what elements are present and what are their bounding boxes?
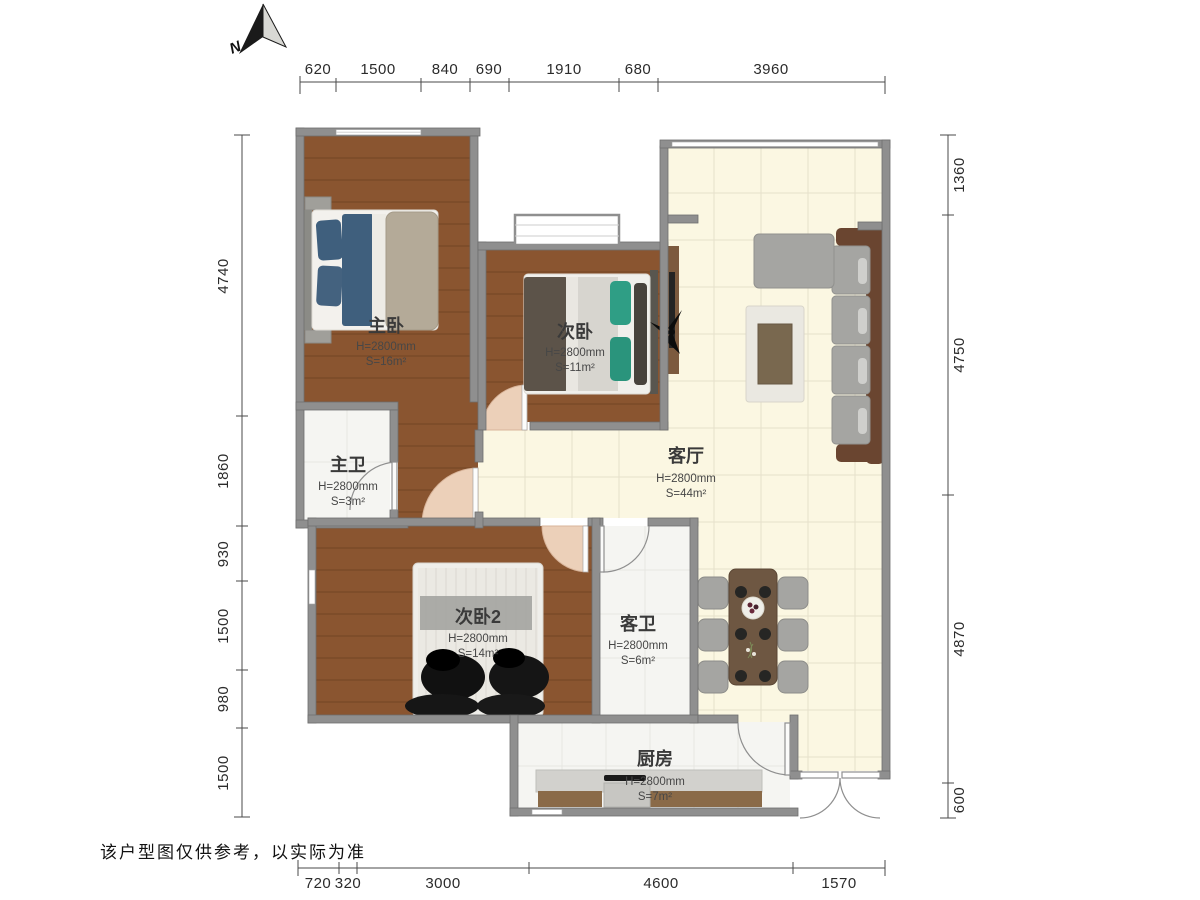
room-name: 次卧 — [557, 321, 593, 342]
room-height: H=2800mm — [625, 776, 685, 788]
dim-bottom-4: 1570 — [821, 875, 856, 892]
room-area: S=44m² — [666, 488, 707, 500]
bed-bench — [477, 694, 545, 718]
flower — [752, 652, 756, 656]
dim-left-1: 1860 — [215, 453, 232, 488]
wall-segment — [470, 136, 478, 402]
dim-right-3: 600 — [951, 787, 968, 814]
wall-segment — [660, 146, 668, 430]
window — [309, 570, 315, 604]
wall-segment — [475, 512, 483, 528]
black-pillow — [426, 649, 460, 671]
nightstand — [305, 330, 331, 343]
dim-top-2: 840 — [432, 61, 459, 78]
wall-segment — [592, 518, 600, 723]
bay-window — [515, 215, 619, 245]
room-area: S=6m² — [621, 655, 655, 667]
plate — [735, 586, 747, 598]
beige-comforter — [386, 212, 438, 330]
compass-needle-dark — [239, 4, 263, 54]
fruit-bowl — [742, 597, 764, 619]
room-name: 客卫 — [620, 613, 656, 634]
cushion-highlight — [858, 308, 867, 334]
dim-top-0: 620 — [305, 61, 332, 78]
bolster-pillow — [634, 283, 647, 385]
wall-stub — [858, 222, 882, 230]
dining-chair — [778, 619, 808, 651]
room-area: S=14m² — [458, 648, 499, 660]
room-name: 主卧 — [368, 315, 404, 336]
entry-door-leaf — [800, 772, 838, 778]
dim-line-top — [300, 76, 885, 94]
bed-bench — [405, 694, 479, 718]
cabinet — [538, 791, 602, 807]
kitchen-door-leaf — [785, 723, 790, 775]
dim-line-bottom — [298, 860, 885, 876]
pillow — [316, 219, 344, 261]
wall-segment — [390, 410, 398, 462]
room-height: H=2800mm — [608, 640, 668, 652]
north-label: N — [227, 37, 244, 57]
dining-chair — [778, 577, 808, 609]
bed-headboard — [304, 210, 312, 330]
wall-segment — [882, 140, 890, 778]
room-name: 厨房 — [637, 748, 673, 769]
dim-line-right — [940, 135, 956, 818]
tv-console — [667, 246, 679, 374]
room-area: S=3m² — [331, 496, 365, 508]
sofa-armrest — [836, 228, 888, 246]
fruit — [748, 603, 753, 608]
wall-segment — [478, 242, 486, 430]
plate — [735, 628, 747, 640]
room-height: H=2800mm — [318, 481, 378, 493]
entry-door-arc-right — [840, 778, 880, 818]
master-bath-door-leaf — [392, 462, 397, 510]
cushion-highlight — [858, 408, 867, 434]
wall-segment — [308, 518, 540, 526]
guest-bath-door-leaf — [600, 526, 604, 572]
fan-hub — [669, 329, 675, 335]
entry-door-arc-left — [800, 778, 840, 818]
wall-segment — [690, 518, 698, 723]
room-name: 主卫 — [330, 454, 366, 475]
dim-bottom-2: 3000 — [425, 875, 460, 892]
entry-door-leaf — [842, 772, 880, 778]
blue-duvet — [342, 214, 374, 326]
flower — [746, 648, 750, 652]
dim-left-4: 980 — [215, 686, 232, 713]
plate — [759, 628, 771, 640]
dining-chair — [778, 661, 808, 693]
room-name: 次卧2 — [455, 606, 501, 627]
wall-stub — [668, 215, 698, 223]
sofa-chaise — [754, 234, 834, 288]
room-area: S=11m² — [555, 362, 595, 374]
plate — [735, 670, 747, 682]
dining-table — [729, 569, 777, 685]
dim-right-2: 4870 — [951, 621, 968, 656]
sheet-fold — [372, 214, 386, 326]
fruit — [750, 609, 755, 614]
wall-segment — [698, 715, 738, 723]
floor-plan-page: 主卧 H=2800mm S=16m² 次卧 H=2800mm S=11m² 客厅… — [0, 0, 1200, 900]
room-height: H=2800mm — [545, 347, 605, 359]
wall-segment — [308, 715, 698, 723]
disclaimer-text: 该户型图仅供参考，以实际为准 — [100, 843, 366, 862]
room-height: H=2800mm — [656, 473, 716, 485]
room-name: 客厅 — [668, 445, 704, 466]
dim-bottom-3: 4600 — [643, 875, 678, 892]
dim-top-6: 3960 — [753, 61, 788, 78]
dim-left-0: 4740 — [215, 258, 232, 293]
dim-top-3: 690 — [476, 61, 503, 78]
wall-segment — [296, 402, 398, 410]
dim-bottom-1: 320 — [335, 875, 362, 892]
teal-pillow — [610, 281, 631, 325]
room-height: H=2800mm — [356, 341, 416, 353]
dim-bottom-0: 720 — [305, 875, 332, 892]
wall-segment — [475, 430, 483, 462]
dim-top-4: 1910 — [546, 61, 581, 78]
dining-set — [698, 569, 808, 693]
dim-top-1: 1500 — [360, 61, 395, 78]
floor-plan-canvas: 主卧 H=2800mm S=16m² 次卧 H=2800mm S=11m² 客厅… — [0, 0, 1200, 900]
pillow — [316, 265, 343, 306]
wall-segment — [790, 715, 798, 779]
plate — [759, 670, 771, 682]
dining-chair — [698, 619, 728, 651]
fruit — [754, 605, 759, 610]
plate — [759, 586, 771, 598]
north-compass: N — [227, 4, 286, 58]
wall-segment — [510, 715, 518, 816]
teal-pillow — [610, 337, 631, 381]
dim-left-3: 1500 — [215, 608, 232, 643]
wall-segment — [296, 128, 304, 528]
dim-right-1: 4750 — [951, 337, 968, 372]
dim-left-2: 930 — [215, 541, 232, 568]
sofa-armrest — [836, 444, 888, 462]
wall-segment — [308, 518, 316, 723]
dining-chair — [698, 661, 728, 693]
dim-line-left — [234, 135, 250, 817]
dining-chair — [698, 577, 728, 609]
cushion-highlight — [858, 358, 867, 384]
wall-segment — [530, 422, 668, 430]
dim-top-5: 680 — [625, 61, 652, 78]
nightstand — [305, 197, 331, 210]
room-height: H=2800mm — [448, 633, 508, 645]
coffee-table — [746, 306, 804, 402]
bedroom-3-door-leaf — [583, 526, 588, 572]
window — [672, 142, 878, 147]
bed-headboard — [650, 270, 658, 394]
coffee-table-top — [758, 324, 792, 384]
hallway-floor — [478, 430, 668, 518]
dim-right-0: 1360 — [951, 157, 968, 192]
compass-needle-light — [263, 4, 286, 47]
cushion-highlight — [858, 258, 867, 284]
room-area: S=7m² — [638, 791, 672, 803]
room-area: S=16m² — [366, 356, 407, 368]
window — [532, 810, 562, 815]
dim-left-5: 1500 — [215, 755, 232, 790]
